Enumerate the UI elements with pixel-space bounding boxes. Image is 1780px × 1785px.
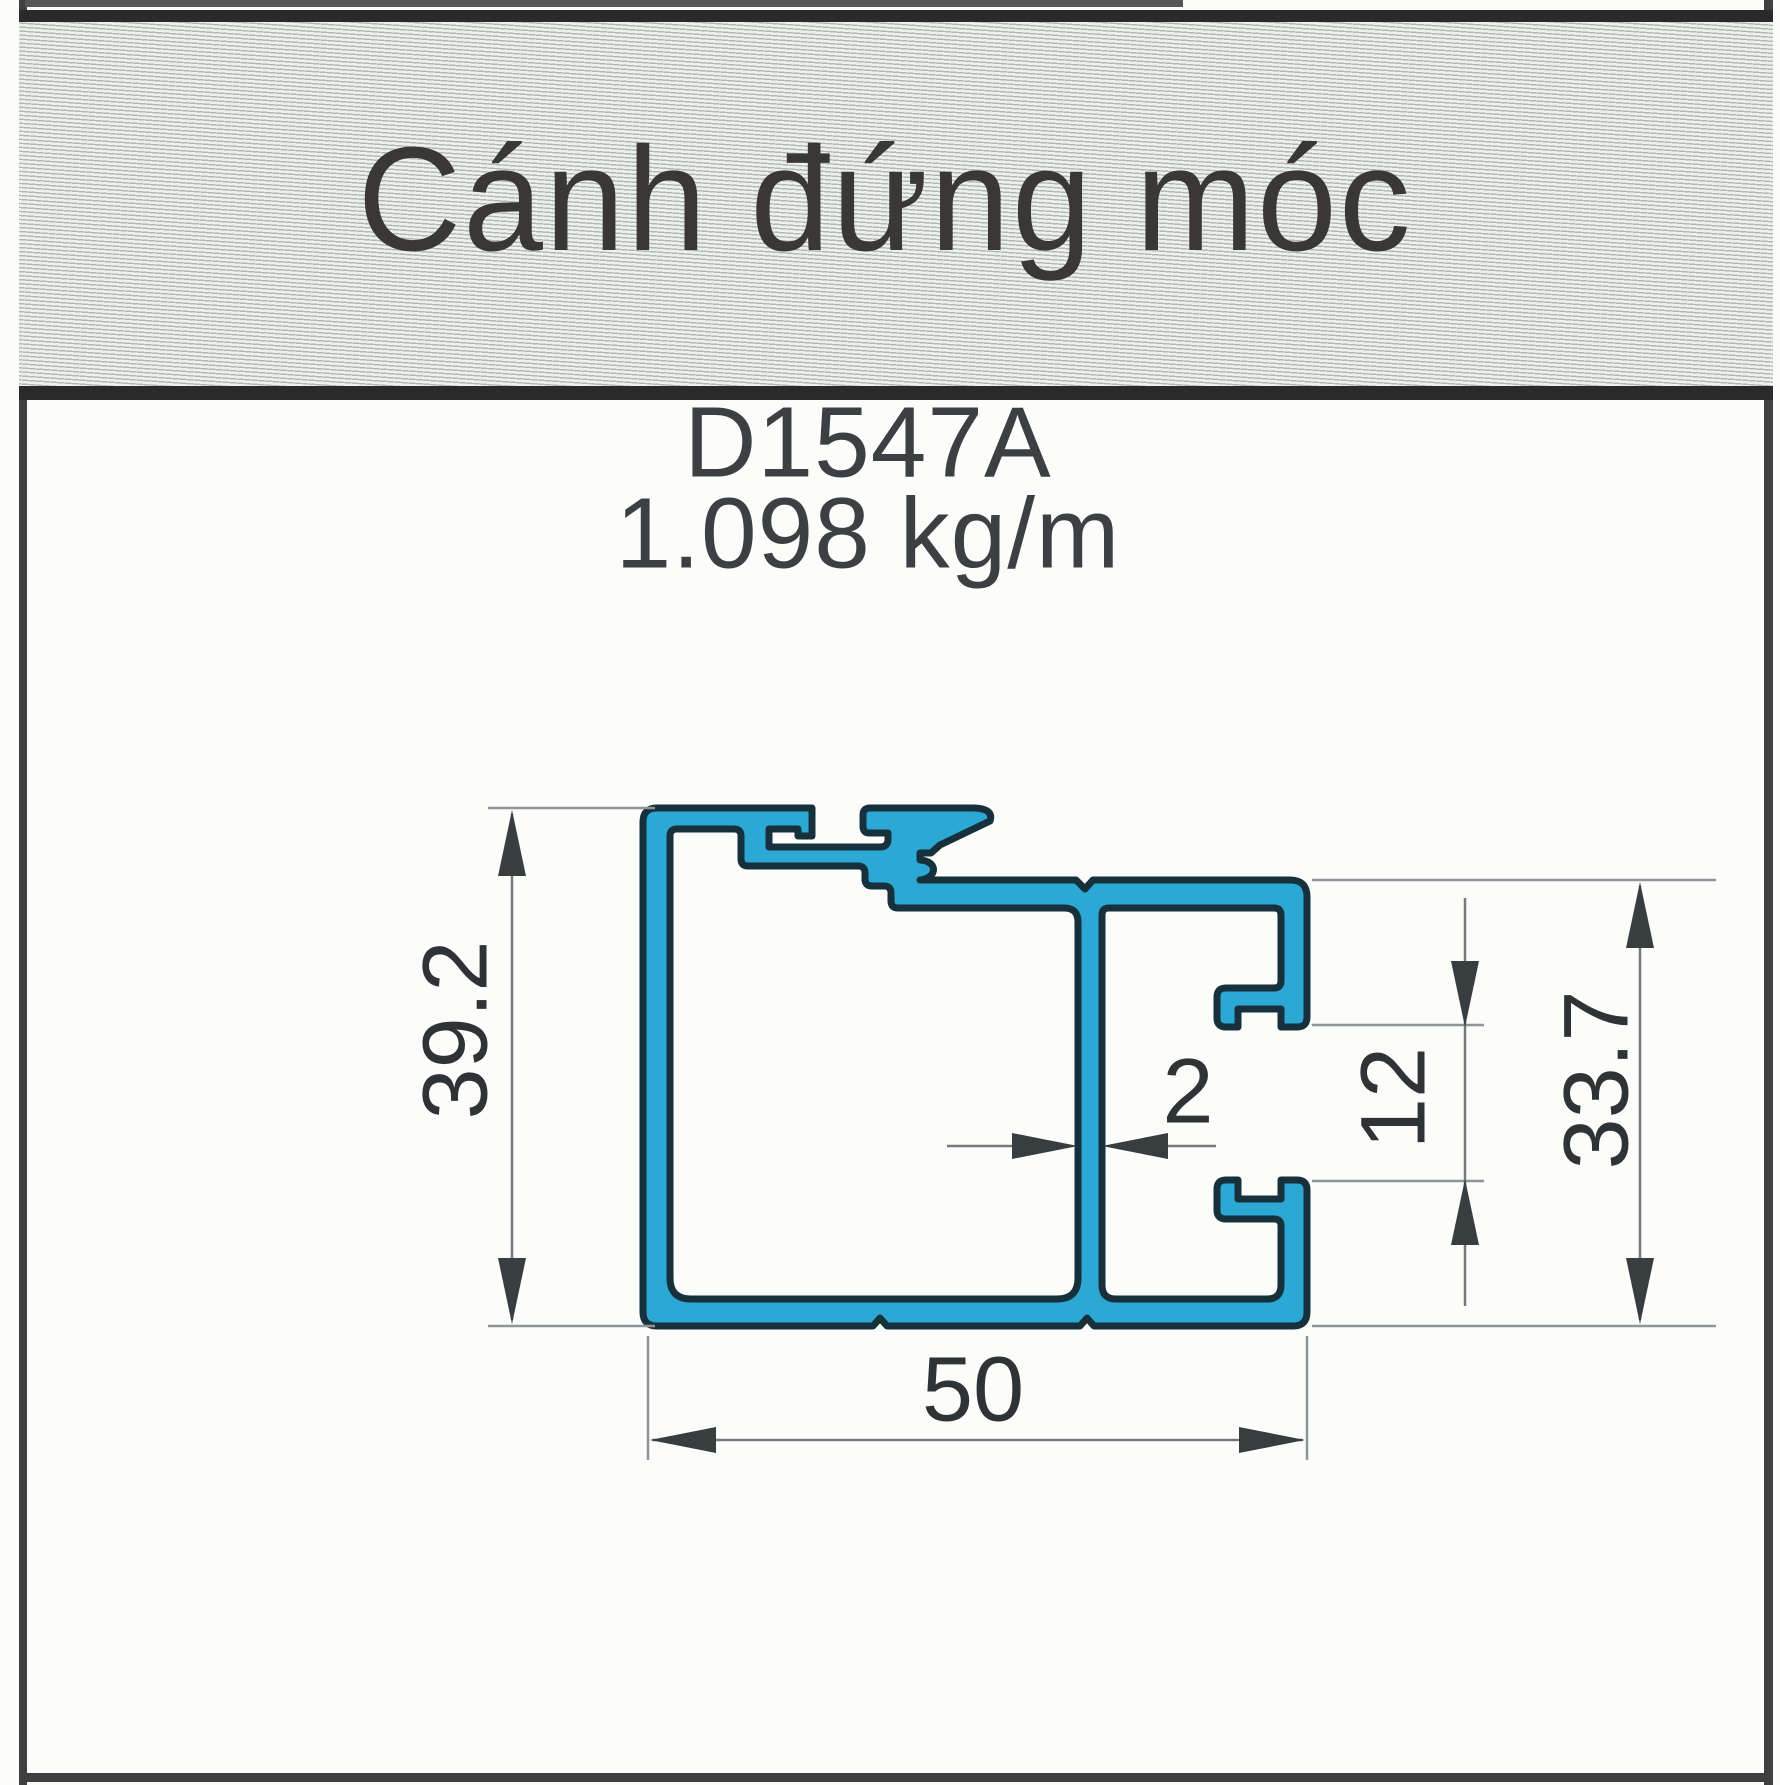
arrow-right-icon xyxy=(1239,1427,1305,1453)
dim-label-channel-opening: 12 xyxy=(1342,1047,1447,1149)
profile-drawing xyxy=(0,0,1780,1785)
arrow-left-icon xyxy=(1102,1133,1168,1159)
arrow-right-icon xyxy=(1012,1133,1078,1159)
dim-label-right-height: 33.7 xyxy=(1545,990,1650,1169)
arrow-up-icon xyxy=(1626,882,1654,948)
dim-label-overall-width: 50 xyxy=(922,1338,1024,1443)
arrow-down-icon xyxy=(498,1258,526,1324)
arrow-down-icon xyxy=(1451,961,1479,1027)
arrow-down-icon xyxy=(1626,1258,1654,1324)
arrow-left-icon xyxy=(650,1427,716,1453)
arrow-up-icon xyxy=(1451,1179,1479,1245)
dim-label-wall-thickness: 2 xyxy=(1162,1040,1213,1145)
dim-overall-height xyxy=(488,808,655,1326)
catalog-page: Cánh đứng móc D1547A 1.098 kg/m xyxy=(0,0,1780,1785)
dim-label-overall-height: 39.2 xyxy=(404,940,509,1119)
arrow-up-icon xyxy=(498,810,526,876)
